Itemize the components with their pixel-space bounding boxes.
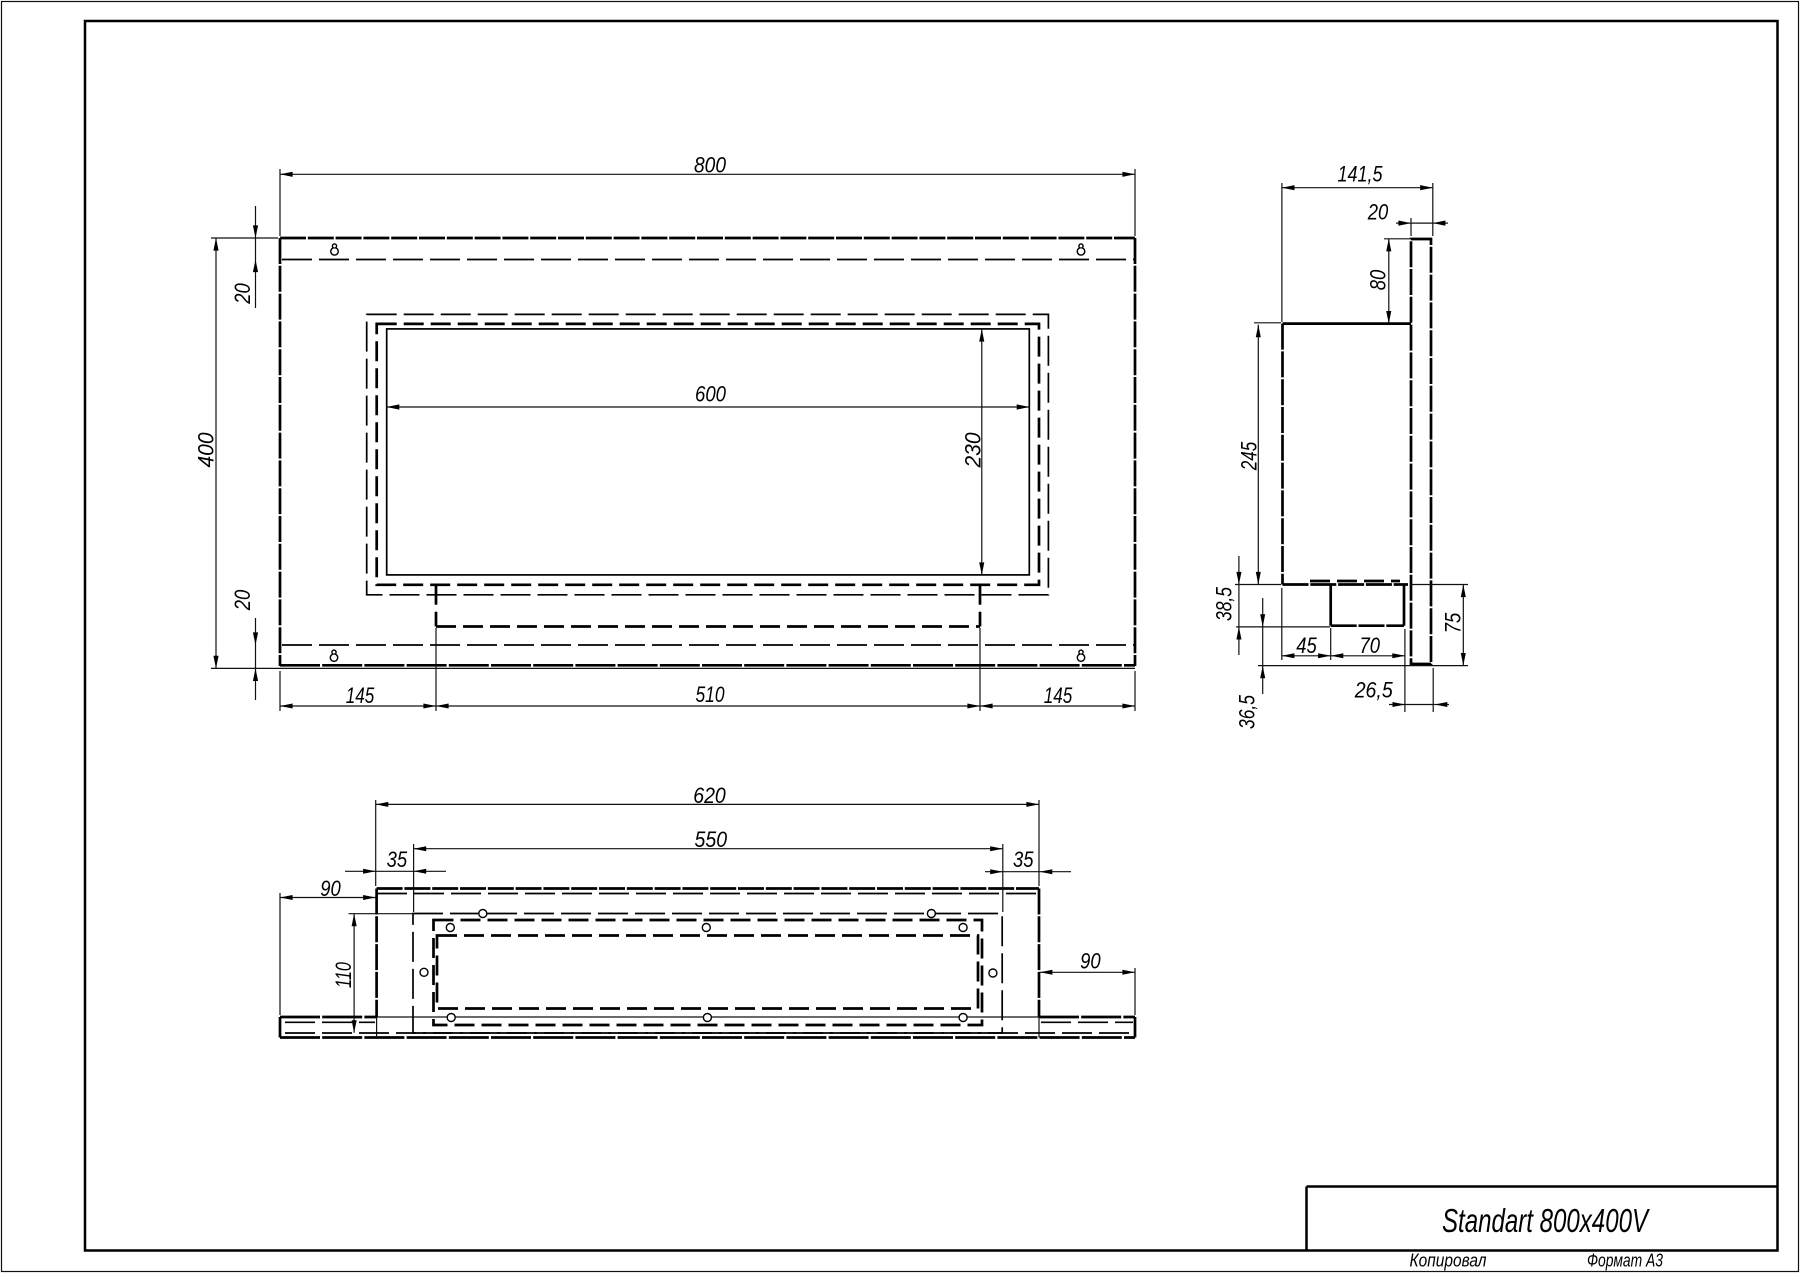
svg-text:Копировал: Копировал: [1410, 1251, 1487, 1271]
svg-text:245: 245: [1237, 441, 1262, 471]
svg-text:70: 70: [1360, 633, 1381, 658]
svg-text:800: 800: [694, 152, 726, 177]
svg-text:36,5: 36,5: [1235, 695, 1260, 729]
svg-text:600: 600: [695, 382, 726, 407]
svg-text:20: 20: [1367, 200, 1389, 225]
svg-text:620: 620: [693, 783, 726, 808]
svg-text:Формат А3: Формат А3: [1587, 1251, 1663, 1271]
svg-text:38,5: 38,5: [1212, 587, 1237, 621]
svg-text:90: 90: [320, 876, 341, 901]
svg-text:510: 510: [696, 682, 725, 707]
svg-text:75: 75: [1441, 612, 1466, 633]
svg-text:Standart 800x400V: Standart 800x400V: [1442, 1202, 1650, 1239]
svg-text:26,5: 26,5: [1354, 677, 1393, 702]
svg-text:141,5: 141,5: [1338, 162, 1383, 187]
svg-text:90: 90: [1080, 949, 1101, 974]
svg-text:20: 20: [230, 283, 255, 305]
svg-text:230: 230: [961, 432, 986, 468]
svg-text:20: 20: [230, 589, 255, 611]
svg-text:35: 35: [387, 847, 408, 872]
svg-text:45: 45: [1296, 633, 1317, 658]
svg-text:145: 145: [346, 683, 375, 708]
svg-text:110: 110: [331, 962, 356, 988]
svg-text:550: 550: [695, 827, 728, 852]
svg-text:400: 400: [194, 432, 219, 467]
svg-text:145: 145: [1044, 683, 1073, 708]
svg-text:80: 80: [1366, 269, 1391, 290]
svg-text:35: 35: [1013, 847, 1034, 872]
